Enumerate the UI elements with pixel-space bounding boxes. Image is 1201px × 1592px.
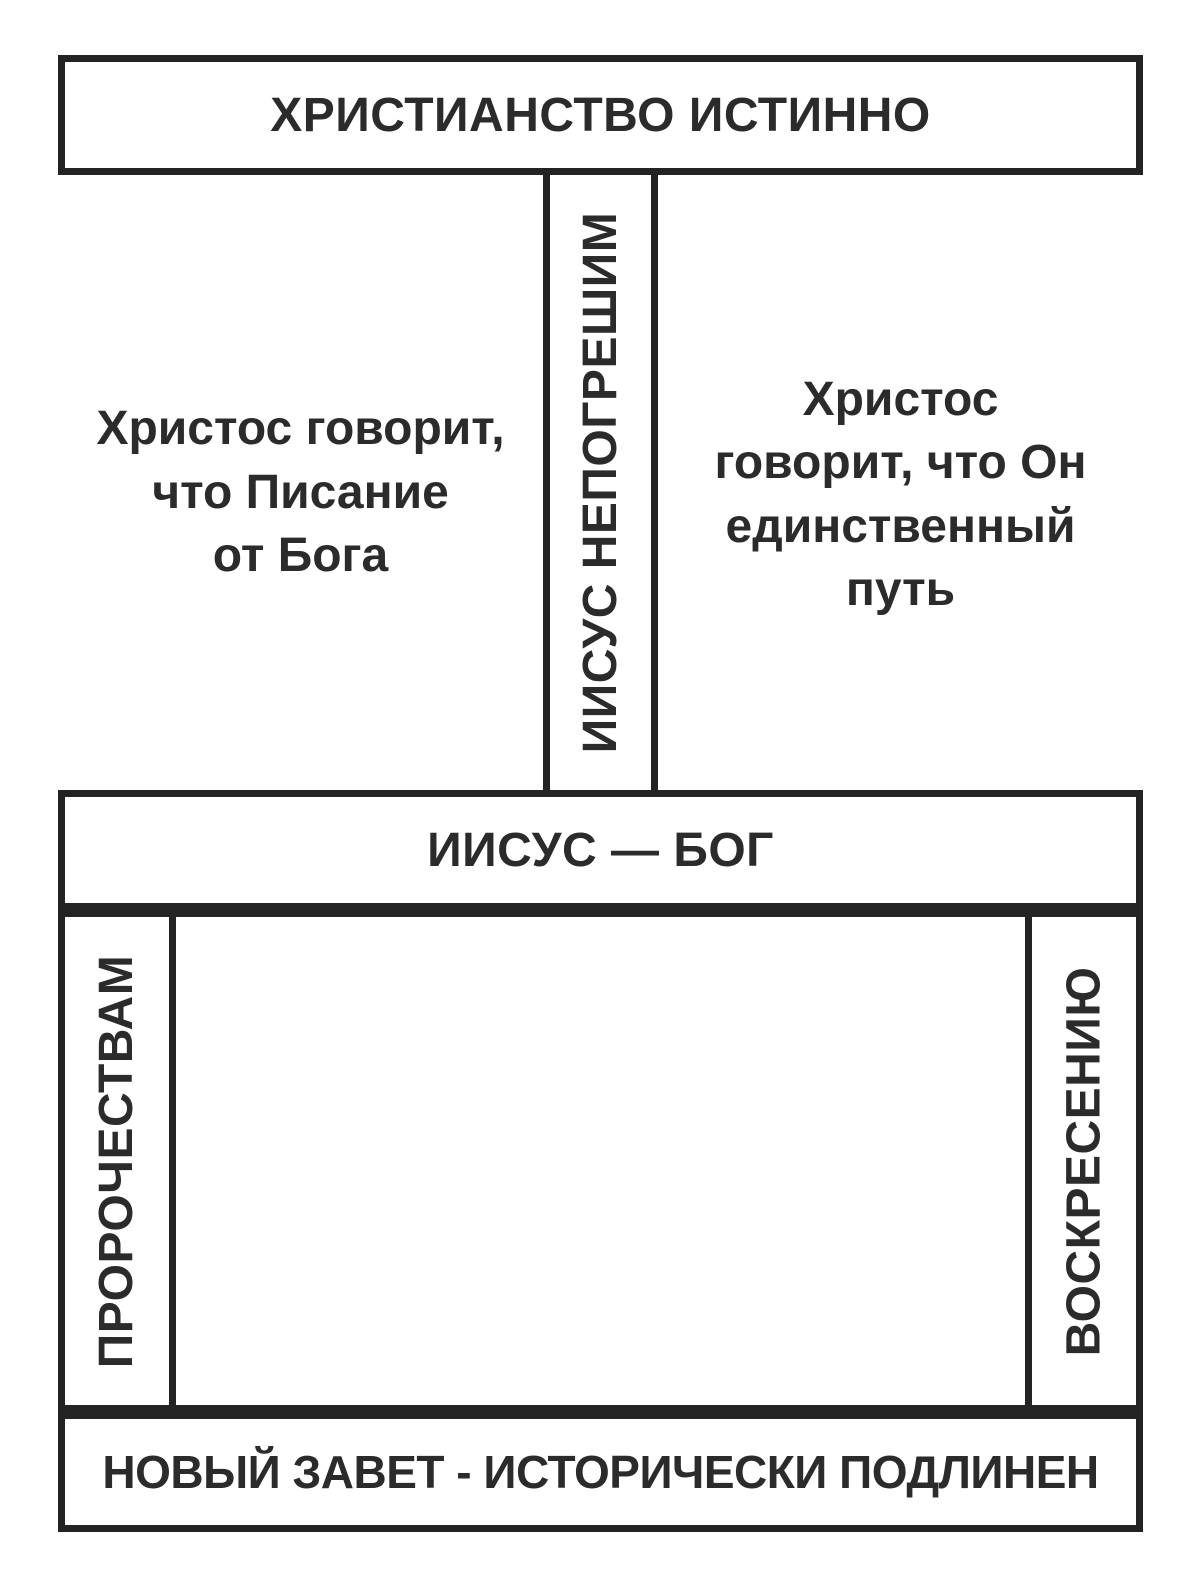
center-pillar-label: ИИСУС НЕПОГРЕШИМ — [573, 212, 628, 753]
foundation-label: НОВЫЙ ЗАВЕТ - ИСТОРИЧЕСКИ ПОДЛИНЕН — [102, 1445, 1098, 1499]
left-note-line: Христос говорит, — [96, 397, 504, 460]
right-note-line: говорит, что Он — [715, 431, 1087, 494]
right-note-line: путь — [846, 558, 955, 621]
left-note: Христос говорит, что Писание от Бога — [58, 385, 543, 600]
left-support-label: ПРОРОЧЕСТВАМ — [90, 954, 145, 1367]
right-note: Христос говорит, что Он единственный пут… — [658, 352, 1143, 637]
right-note-line: Христос — [803, 368, 999, 431]
right-note-line: единственный — [726, 495, 1076, 558]
center-empty-panel — [169, 910, 1032, 1412]
right-support-pillar: ВОСКРЕСЕНИЮ — [1025, 910, 1143, 1412]
middle-statement-label: ИИСУС — БОГ — [427, 823, 774, 878]
left-note-line: от Бога — [213, 524, 388, 587]
right-support-label: ВОСКРЕСЕНИЮ — [1057, 966, 1112, 1356]
left-support-pillar: ПРОРОЧЕСТВАМ — [58, 910, 176, 1412]
middle-statement-box: ИИСУС — БОГ — [58, 790, 1143, 910]
left-note-line: что Писание — [152, 461, 449, 524]
top-conclusion-label: ХРИСТИАНСТВО ИСТИННО — [270, 88, 931, 143]
foundation-box: НОВЫЙ ЗАВЕТ - ИСТОРИЧЕСКИ ПОДЛИНЕН — [58, 1412, 1143, 1532]
apologetics-diagram: ХРИСТИАНСТВО ИСТИННО ИИСУС НЕПОГРЕШИМ Хр… — [0, 0, 1201, 1592]
top-conclusion-box: ХРИСТИАНСТВО ИСТИННО — [58, 55, 1143, 175]
center-pillar: ИИСУС НЕПОГРЕШИМ — [543, 175, 658, 790]
